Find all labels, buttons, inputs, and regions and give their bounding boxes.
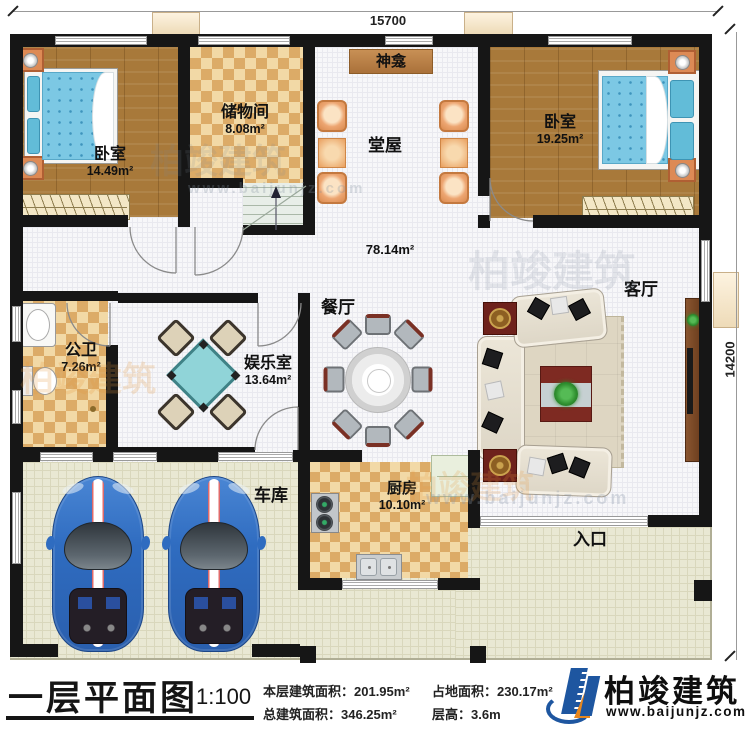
bed-pillow [27,76,40,112]
dimension-tick [724,23,735,34]
room-label-dining: 餐厅 [321,298,355,317]
door-handle [90,406,96,412]
porch-column [470,646,486,663]
stat-storey-height: 层高：3.6m [432,704,501,723]
window [55,36,147,45]
wall [10,450,40,462]
bed-pillow [670,122,694,160]
room-area: 14.49m² [87,164,134,178]
window [12,306,21,342]
wall [478,34,490,196]
window [113,452,157,461]
eave-box [464,12,513,35]
hall-chair [317,100,347,132]
window [548,36,632,45]
room-area: 19.25m² [537,132,584,146]
wall [298,450,310,590]
car [168,476,260,652]
wall [10,644,58,657]
room-name: 车库 [254,486,288,505]
window [342,580,438,589]
shrine-altar: 神龛 [349,49,433,74]
bathroom-sink [20,303,56,347]
hall-chair [439,172,469,204]
wall [10,291,118,301]
plant [554,382,578,406]
room-label-entertainment: 娱乐室 13.64m² [244,355,292,387]
footer: 一层平面图 1:100 本层建筑面积：201.95m² 占地面积：230.17m… [0,664,750,734]
nightstand [668,158,696,182]
room-label-bathroom: 公卫 7.26m² [61,342,101,374]
wall [190,178,243,188]
porch-column [300,646,316,663]
nightstand [668,50,696,74]
room-name: 厨房 [379,481,426,498]
wall [298,293,310,457]
stat-total-area: 总建筑面积：346.25m² [263,704,397,723]
title-underline [6,716,254,720]
stat-land-area: 占地面积：230.17m² [432,681,553,700]
room-name: 公卫 [61,342,101,360]
dimension-line-top [13,11,718,12]
porch-edge [10,658,712,660]
room-label-bedroom-right: 卧室 19.25m² [537,114,584,146]
porch-column [694,580,712,601]
window [385,36,433,45]
window [12,492,21,564]
window [12,390,21,424]
dining-table [346,348,410,412]
wall [303,34,315,235]
car-windshield [64,522,132,570]
sofa-pillow [550,296,569,315]
brand-site: www.baijunjz.com [606,704,747,719]
room-name: 入口 [573,530,607,549]
bed-pillow [27,118,40,154]
plan-scale: 1:100 [196,684,251,710]
wall [468,450,480,528]
wall [10,215,128,227]
dining-chair [412,367,433,393]
room-label-storage: 储物间 8.08m² [221,104,269,136]
wall [478,215,490,228]
room-name: 堂屋 [368,136,402,155]
wall [533,215,712,228]
toilet-bowl [33,367,57,395]
dining-chair [324,367,345,393]
window [40,452,93,461]
wall [106,345,118,457]
sliding-door [480,516,648,526]
hall-chair [317,172,347,204]
room-name: 餐厅 [321,298,355,317]
wall [252,644,300,657]
wall [438,578,480,590]
wall [648,515,712,527]
room-label-entrance: 入口 [573,530,607,549]
room-name: 卧室 [87,146,134,164]
wall [243,225,315,235]
hall-chair [439,100,469,132]
room-area: 13.64m² [244,373,292,387]
room-area: 10.10m² [379,498,426,512]
stove-burner [316,514,333,531]
car-engine-bay [69,588,127,644]
dimension-label-right: 14200 [723,330,738,390]
room-area: 7.26m² [61,360,101,374]
window [198,36,290,45]
wall [93,450,113,462]
wall [298,578,342,590]
car [52,476,144,652]
end-table [483,449,517,482]
sink-basin [380,558,397,576]
plan-title: 一层平面图 [8,670,198,721]
room-label-living: 客厅 [624,280,658,299]
floor-plan-canvas: 15700 14200 神龛 [0,0,750,734]
dining-chair [365,426,391,447]
eave-box [152,12,200,35]
wall [106,291,118,301]
window [218,452,293,461]
bed-pillow [670,80,694,118]
wall [178,34,190,227]
stat-floor-area: 本层建筑面积：201.95m² [263,681,410,700]
room-label-kitchen: 厨房 10.10m² [379,481,426,512]
tv [687,348,693,414]
car-engine-bay [185,588,243,644]
sofa-pillow [527,457,547,477]
car-windshield [180,522,248,570]
room-label-garage: 车库 [254,486,288,505]
hall-side-table [318,138,346,168]
wall [293,450,310,462]
stove-burner [316,496,333,513]
room-name: 娱乐室 [244,355,292,373]
room-label-bedroom-left: 卧室 14.49m² [87,146,134,178]
dining-chair [365,314,391,335]
sink-basin [360,558,377,576]
wall [118,293,258,303]
room-area: 8.08m² [221,122,269,136]
plant [687,314,699,326]
brand-logo-icon [546,664,602,730]
room-label-hall: 堂屋 [368,136,402,155]
hall-side-table [440,138,468,168]
dimension-label-top: 15700 [340,13,436,28]
end-table [483,302,517,335]
dimension-tick [724,650,735,661]
room-label-open-area: 78.14m² [366,243,414,258]
window [701,240,710,302]
sofa-pillow [484,380,504,400]
wall [157,450,218,462]
room-name: 卧室 [537,114,584,132]
room-name: 客厅 [624,280,658,299]
room-area: 78.14m² [366,243,414,258]
room-name: 储物间 [221,104,269,122]
